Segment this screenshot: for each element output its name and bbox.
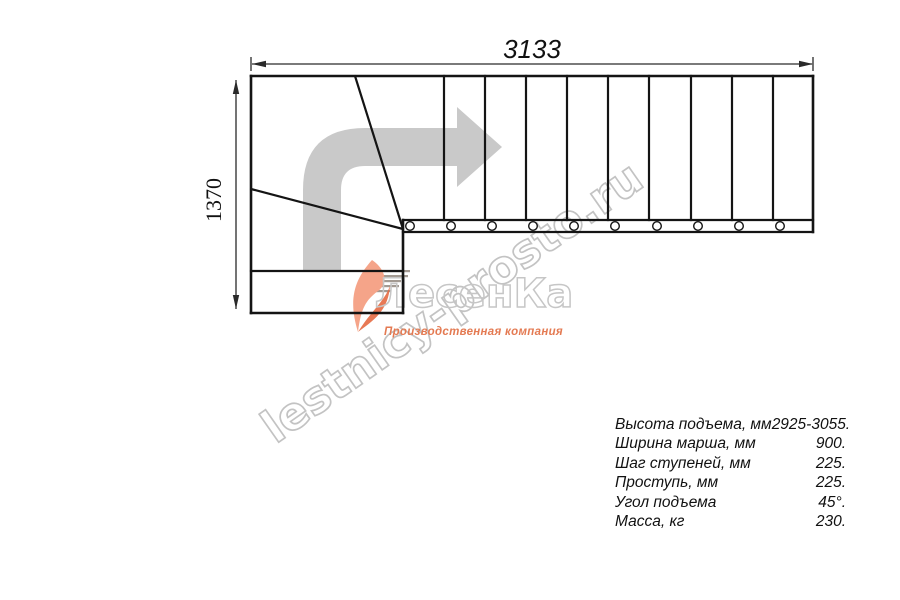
spec-table: Высота подъема, мм 2925-3055. Ширина мар… [615, 415, 846, 531]
dimension-depth-label: 1370 [201, 178, 226, 222]
spec-value: 225. [816, 473, 846, 492]
spec-row: Шаг ступеней, мм 225. [615, 454, 846, 473]
spec-label: Масса, кг [615, 512, 684, 531]
spec-value: 225. [816, 454, 846, 473]
spec-row: Проступь, мм 225. [615, 473, 846, 492]
spec-value: 2925-3055. [772, 415, 850, 434]
dimension-width: 3133 [251, 34, 813, 71]
stringer-band [403, 220, 813, 232]
spec-value: 45°. [818, 493, 846, 512]
spec-label: Ширина марша, мм [615, 434, 756, 453]
dimension-width-label: 3133 [503, 34, 561, 64]
spec-label: Высота подъема, мм [615, 415, 772, 434]
spec-value: 230. [816, 512, 846, 531]
baluster-circles [406, 222, 785, 231]
spec-label: Проступь, мм [615, 473, 718, 492]
spec-label: Шаг ступеней, мм [615, 454, 751, 473]
spec-row: Угол подъема 45°. [615, 493, 846, 512]
spec-value: 900. [816, 434, 846, 453]
dimension-depth: 1370 [201, 80, 239, 309]
spec-row: Высота подъема, мм 2925-3055. [615, 415, 846, 434]
spec-row: Масса, кг 230. [615, 512, 846, 531]
spec-row: Ширина марша, мм 900. [615, 434, 846, 453]
stair-drawing-page: lestnicy-prosto.ru ЛесенКа Производствен… [0, 0, 900, 600]
spec-label: Угол подъема [615, 493, 716, 512]
